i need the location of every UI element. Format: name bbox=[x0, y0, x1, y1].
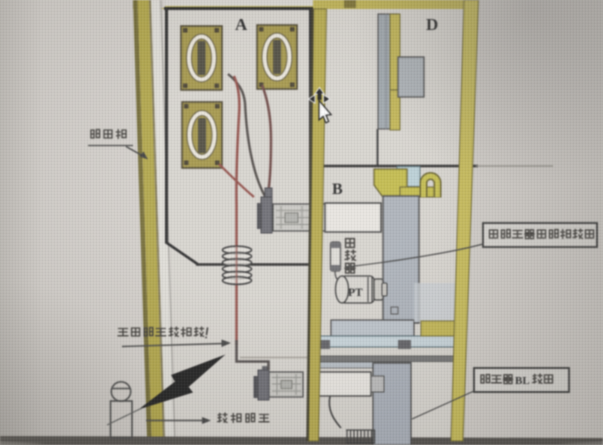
svg-text:BL: BL bbox=[515, 375, 530, 387]
svg-text:PT: PT bbox=[348, 287, 363, 299]
svg-text:B: B bbox=[332, 181, 343, 198]
svg-text:A: A bbox=[235, 15, 248, 34]
svg-text:D: D bbox=[426, 15, 438, 34]
